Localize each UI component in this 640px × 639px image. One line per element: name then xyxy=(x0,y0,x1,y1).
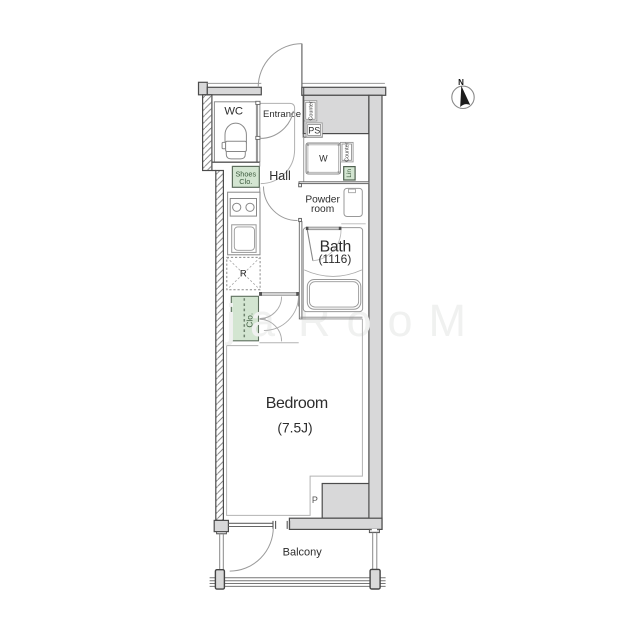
svg-text:PS: PS xyxy=(308,125,320,135)
svg-text:Balcony: Balcony xyxy=(283,547,323,559)
svg-text:Counter: Counter xyxy=(345,142,351,161)
svg-text:Hall: Hall xyxy=(269,169,291,183)
svg-text:ja: ja xyxy=(224,295,289,346)
svg-text:(7.5J): (7.5J) xyxy=(277,421,312,436)
svg-text:Counter: Counter xyxy=(308,101,314,120)
svg-text:room: room xyxy=(311,204,334,215)
svg-text:Clo.: Clo. xyxy=(244,313,254,328)
svg-text:WC: WC xyxy=(224,105,242,117)
svg-text:W: W xyxy=(319,154,328,164)
svg-text:R: R xyxy=(240,269,247,280)
svg-text:N: N xyxy=(458,78,464,87)
svg-text:P: P xyxy=(312,495,318,505)
svg-text:Lin: Lin xyxy=(346,169,353,178)
svg-text:Entrance: Entrance xyxy=(263,109,301,120)
svg-text:Clo.: Clo. xyxy=(239,177,252,186)
svg-text:Bedroom: Bedroom xyxy=(266,395,328,412)
svg-text:(1116): (1116) xyxy=(318,252,351,266)
